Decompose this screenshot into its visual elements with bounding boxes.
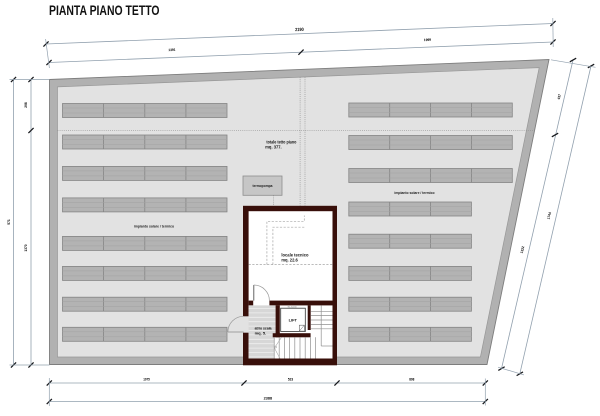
svg-text:2190: 2190 bbox=[295, 27, 304, 32]
svg-text:523: 523 bbox=[288, 378, 293, 382]
svg-text:1322: 1322 bbox=[520, 246, 526, 254]
svg-text:1075: 1075 bbox=[143, 378, 150, 382]
svg-text:1370: 1370 bbox=[24, 244, 28, 251]
svg-text:1391: 1391 bbox=[168, 48, 175, 52]
svg-text:mq. 377.: mq. 377. bbox=[265, 144, 281, 149]
svg-text:90.3x130: 90.3x130 bbox=[288, 307, 298, 309]
svg-text:571: 571 bbox=[7, 219, 11, 224]
svg-text:PIANTA PIANO TETTO: PIANTA PIANO TETTO bbox=[49, 3, 160, 18]
svg-text:LIFT: LIFT bbox=[289, 317, 298, 322]
svg-text:impianto solare / termico: impianto solare / termico bbox=[134, 225, 174, 229]
svg-text:1744: 1744 bbox=[547, 212, 553, 220]
svg-text:1999: 1999 bbox=[424, 38, 431, 42]
svg-text:impianto solare / termico: impianto solare / termico bbox=[394, 191, 434, 195]
svg-text:808: 808 bbox=[409, 378, 414, 382]
svg-text:2388: 2388 bbox=[264, 397, 272, 401]
svg-text:mq. 5.: mq. 5. bbox=[255, 330, 267, 335]
svg-text:437: 437 bbox=[557, 94, 562, 100]
svg-text:298: 298 bbox=[24, 102, 28, 107]
svg-text:mq. 22.6: mq. 22.6 bbox=[281, 257, 298, 262]
svg-text:termopompa: termopompa bbox=[253, 184, 273, 188]
